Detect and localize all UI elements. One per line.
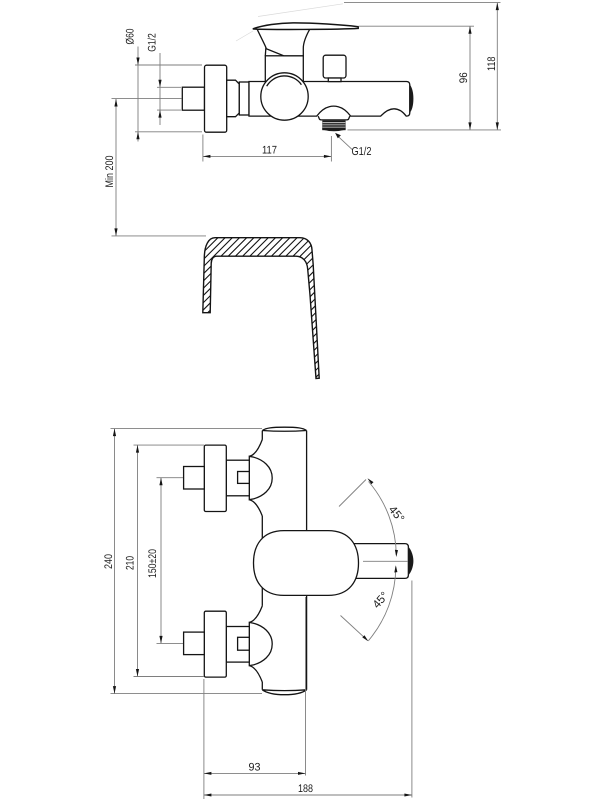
svg-text:93: 93 — [249, 762, 261, 774]
svg-text:210: 210 — [124, 556, 136, 570]
svg-text:188: 188 — [298, 783, 313, 795]
svg-text:240: 240 — [103, 554, 115, 569]
svg-text:117: 117 — [262, 145, 277, 157]
svg-text:118: 118 — [486, 57, 498, 72]
svg-text:G1/2: G1/2 — [146, 33, 158, 52]
svg-text:150±20: 150±20 — [147, 549, 159, 578]
svg-text:Ø60: Ø60 — [124, 29, 136, 45]
svg-text:96: 96 — [458, 72, 470, 83]
svg-text:Min 200: Min 200 — [104, 156, 116, 188]
svg-text:G1/2: G1/2 — [352, 146, 372, 158]
